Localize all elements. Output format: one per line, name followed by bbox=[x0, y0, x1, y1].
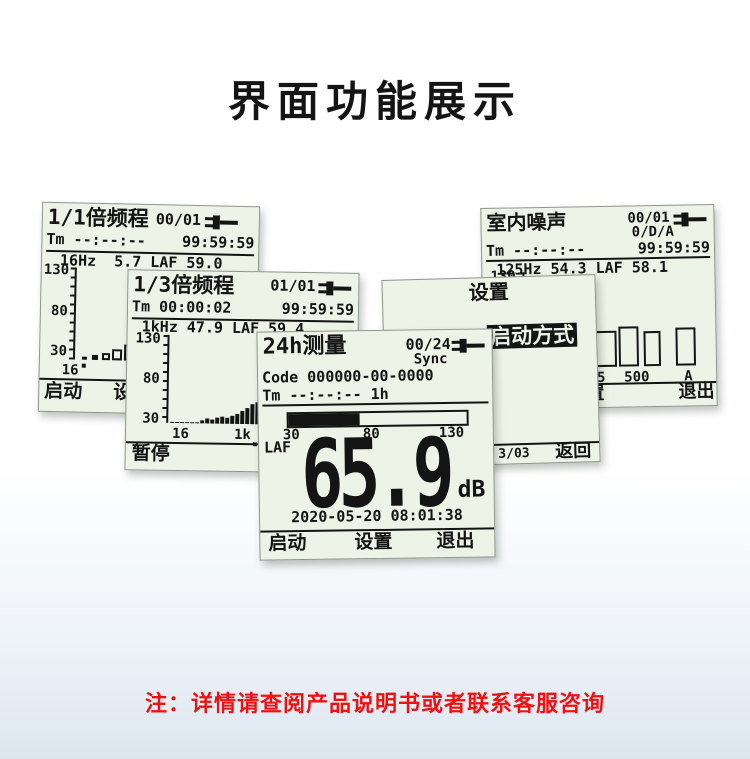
tm-value: Tm --:--:-- bbox=[46, 230, 146, 250]
pager-indicator: 3/03 bbox=[498, 447, 530, 462]
screen-title: 室内噪声 bbox=[486, 212, 566, 234]
x-tick-1k: 1k bbox=[234, 428, 251, 443]
y-tick-80: 80 bbox=[51, 304, 68, 319]
tm-value: Tm --:--:-- bbox=[486, 240, 586, 260]
softkey-exit[interactable]: 退出 bbox=[436, 532, 474, 552]
menu-item-label: 启动方式 bbox=[487, 323, 578, 350]
softkey-back[interactable]: 返回 bbox=[555, 442, 592, 462]
sync-indicator: Sync bbox=[414, 352, 448, 367]
softkey-start[interactable]: 启动 bbox=[44, 382, 82, 403]
softkey-pause[interactable]: 暂停 bbox=[132, 444, 170, 465]
unit-label: dB bbox=[457, 477, 485, 502]
page-counter: 01/01 bbox=[270, 278, 315, 294]
power-plug-icon bbox=[205, 215, 239, 230]
softkey-setup[interactable]: 设置 bbox=[354, 533, 392, 553]
x-tick-16: 16 bbox=[172, 427, 189, 442]
y-tick-130: 130 bbox=[44, 263, 70, 278]
y-tick-30: 30 bbox=[142, 411, 159, 426]
screen-24h-measure: 24h测量 00/24 Sync Code 000000-00-0000 Tm … bbox=[256, 328, 495, 560]
page-title: 界面功能展示 bbox=[0, 68, 750, 129]
power-plug-icon bbox=[452, 338, 486, 352]
x-tick-16: 16 bbox=[62, 363, 79, 378]
page-counter: 00/01 bbox=[156, 212, 201, 229]
bars-layer bbox=[170, 400, 269, 425]
softkey-start[interactable]: 启动 bbox=[268, 534, 306, 554]
screen-title: 1/1倍频程 bbox=[48, 206, 149, 230]
page-note: 注：详情请查阅产品说明书或者联系客服咨询 bbox=[0, 686, 750, 718]
y-tick-130: 130 bbox=[135, 331, 161, 346]
cursor-dot bbox=[82, 364, 86, 368]
datetime-value: 2020-05-20 08:01:38 bbox=[260, 507, 494, 526]
power-plug-icon bbox=[318, 281, 352, 296]
tm-value: Tm 00:00:02 bbox=[132, 297, 232, 317]
timer-value: 99:59:59 bbox=[282, 300, 355, 319]
axis-ticks bbox=[162, 335, 168, 423]
page: 界面功能展示 1/1倍频程 00/01 Tm --:--:-- 99:59:59… bbox=[0, 0, 750, 759]
screen-title: 24h测量 bbox=[262, 334, 346, 358]
tm-row: Tm --:--:-- 1h bbox=[262, 383, 488, 406]
tm-value: Tm --:--:-- 1h bbox=[262, 385, 389, 405]
softkey-exit[interactable]: 退出 bbox=[678, 383, 714, 403]
y-tick-30: 30 bbox=[50, 344, 67, 359]
y-tick-80: 80 bbox=[143, 371, 160, 386]
timer-value: 99:59:59 bbox=[182, 233, 255, 253]
screen-title: 1/3倍频程 bbox=[133, 273, 234, 297]
power-plug-icon bbox=[673, 212, 707, 227]
timer-value: 99:59:59 bbox=[638, 238, 711, 257]
